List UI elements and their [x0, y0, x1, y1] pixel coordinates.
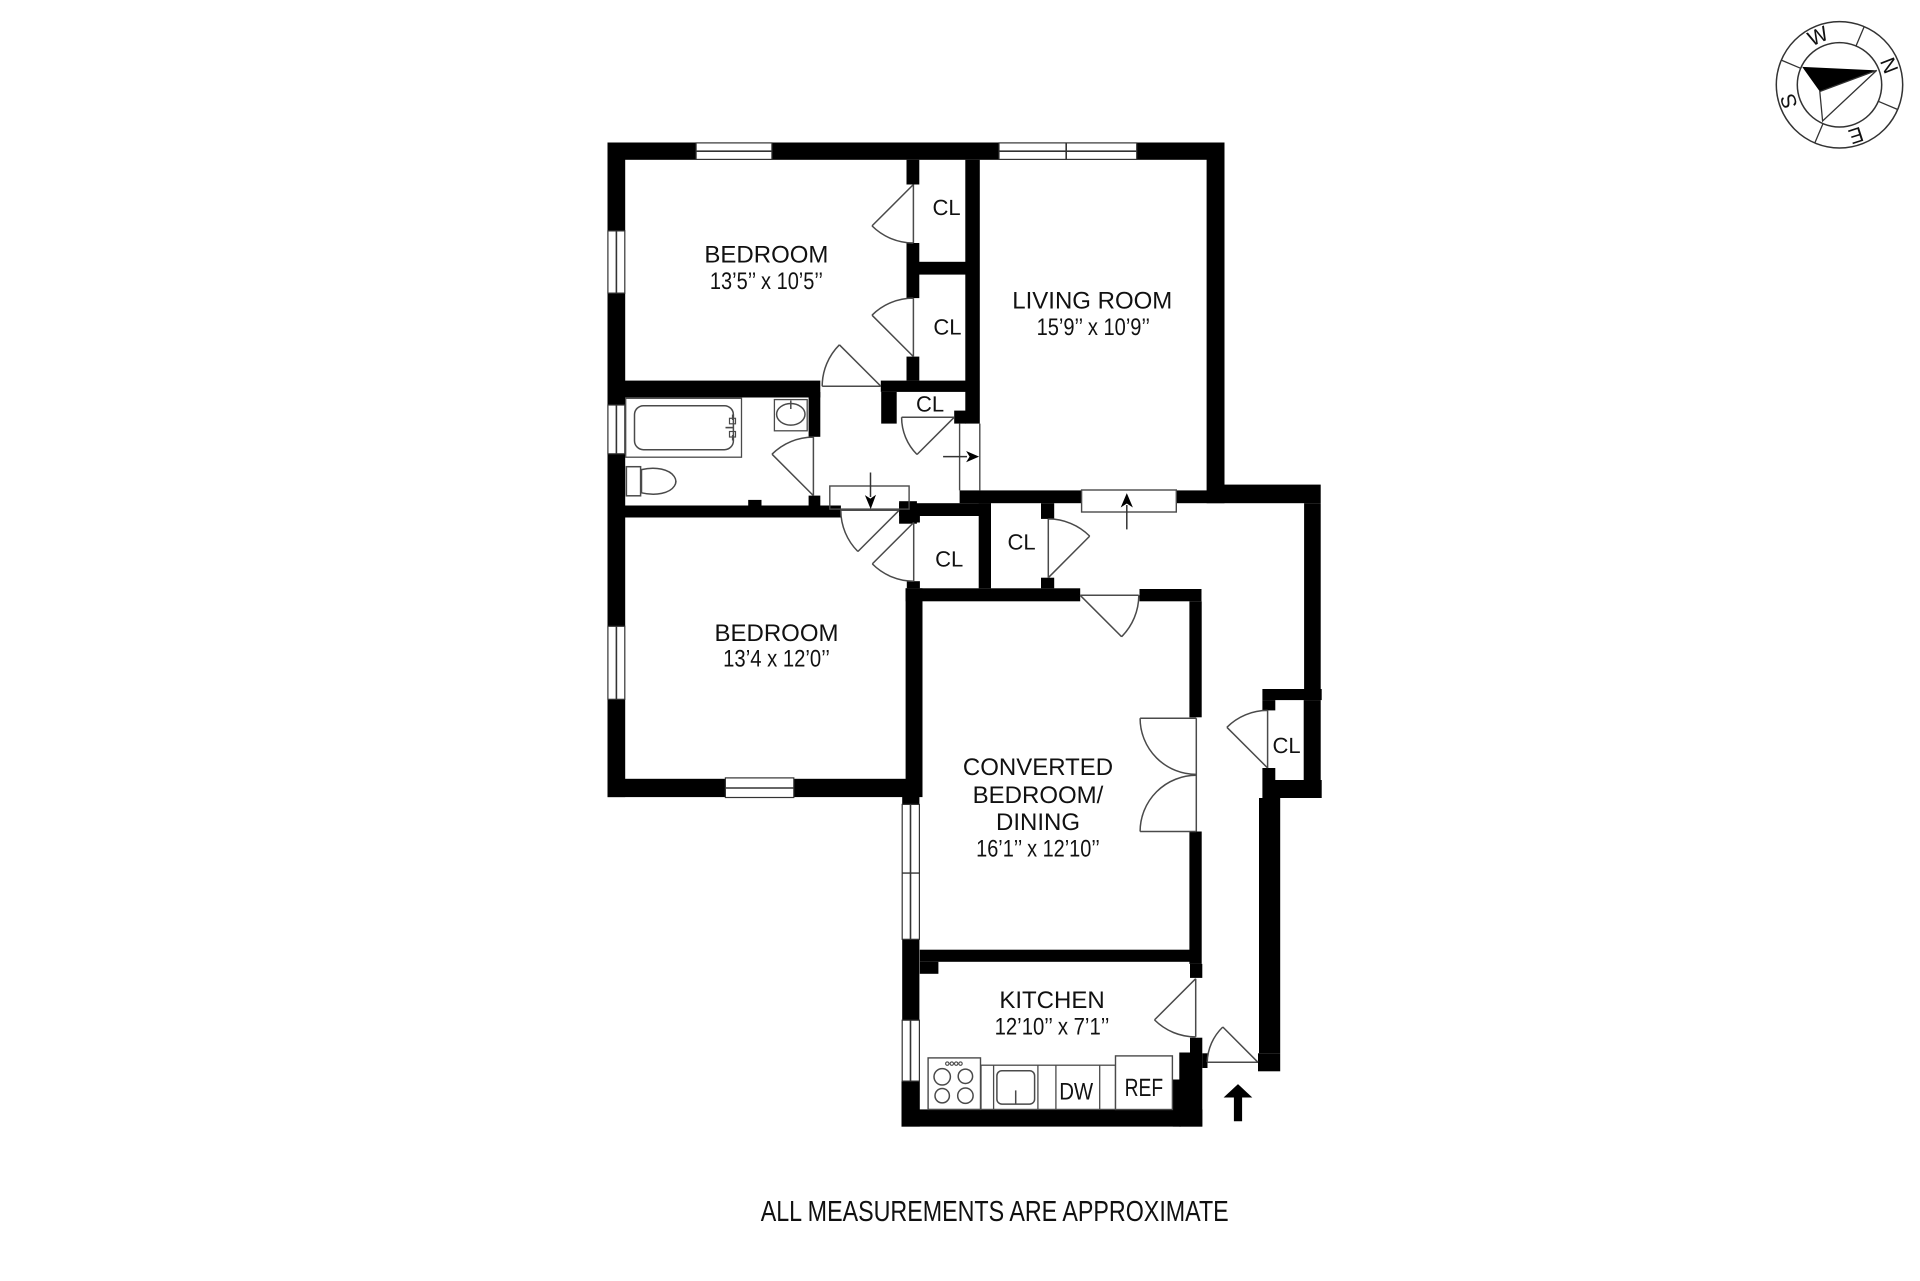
svg-text:CL: CL: [1272, 733, 1300, 758]
svg-text:KITCHEN: KITCHEN: [999, 987, 1104, 1014]
svg-text:12’10’’ x 7’1’’: 12’10’’ x 7’1’’: [995, 1014, 1110, 1041]
svg-text:13’5’’ x 10’5’’: 13’5’’ x 10’5’’: [710, 268, 823, 295]
svg-text:DINING: DINING: [996, 809, 1080, 836]
svg-text:CL: CL: [916, 392, 944, 417]
svg-text:LIVING ROOM: LIVING ROOM: [1012, 288, 1172, 315]
svg-text:CONVERTED: CONVERTED: [963, 754, 1113, 781]
svg-text:CL: CL: [933, 195, 961, 220]
svg-text:REF: REF: [1125, 1074, 1164, 1102]
svg-text:BEDROOM: BEDROOM: [704, 242, 828, 269]
svg-text:16’1’’ x 12’10’’: 16’1’’ x 12’10’’: [976, 836, 1100, 863]
svg-text:CL: CL: [933, 315, 961, 340]
svg-text:CL: CL: [935, 547, 963, 572]
svg-text:CL: CL: [1008, 530, 1036, 555]
svg-text:BEDROOM: BEDROOM: [714, 620, 838, 647]
svg-text:15’9’’ x 10’9’’: 15’9’’ x 10’9’’: [1037, 314, 1150, 341]
svg-text:ALL MEASUREMENTS ARE APPROXIMA: ALL MEASUREMENTS ARE APPROXIMATE: [761, 1196, 1229, 1228]
svg-text:13’4 x 12’0’’: 13’4 x 12’0’’: [723, 646, 830, 673]
svg-text:DW: DW: [1059, 1079, 1093, 1106]
svg-text:BEDROOM/: BEDROOM/: [973, 782, 1104, 809]
